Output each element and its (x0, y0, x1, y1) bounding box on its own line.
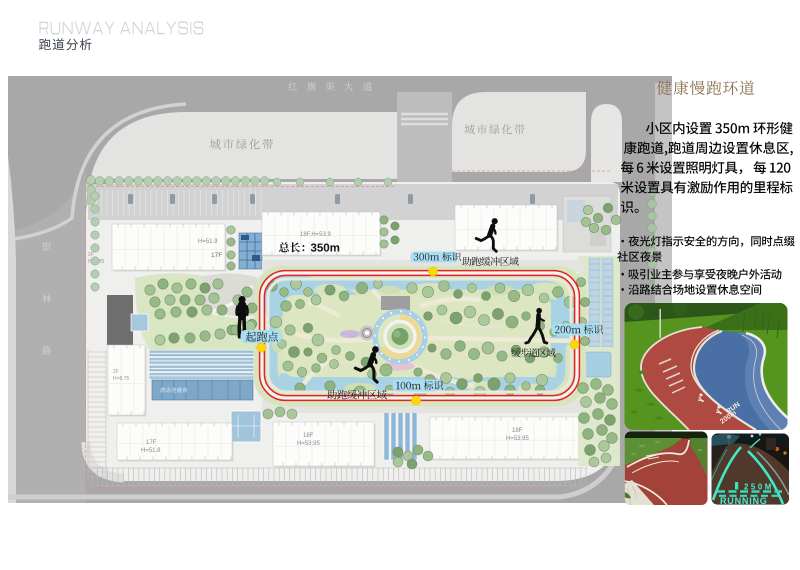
svg-text:18F: 18F (303, 433, 314, 439)
svg-text:250M: 250M (744, 483, 774, 492)
svg-text:2F: 2F (113, 369, 119, 375)
svg-text:17F: 17F (146, 440, 157, 446)
svg-text:H=53.95: H=53.95 (506, 436, 530, 442)
svg-text:18F,H=53.9: 18F,H=53.9 (300, 232, 332, 238)
svg-text:H=8.75: H=8.75 (113, 376, 129, 382)
svg-text:H=53.95: H=53.95 (297, 441, 321, 447)
svg-text:17F: 17F (211, 252, 222, 259)
svg-text:H=51.9: H=51.9 (198, 239, 218, 245)
svg-text:RUNNING: RUNNING (720, 496, 768, 506)
svg-text:H=51.8: H=51.8 (141, 448, 161, 454)
svg-text:18F: 18F (512, 428, 523, 434)
